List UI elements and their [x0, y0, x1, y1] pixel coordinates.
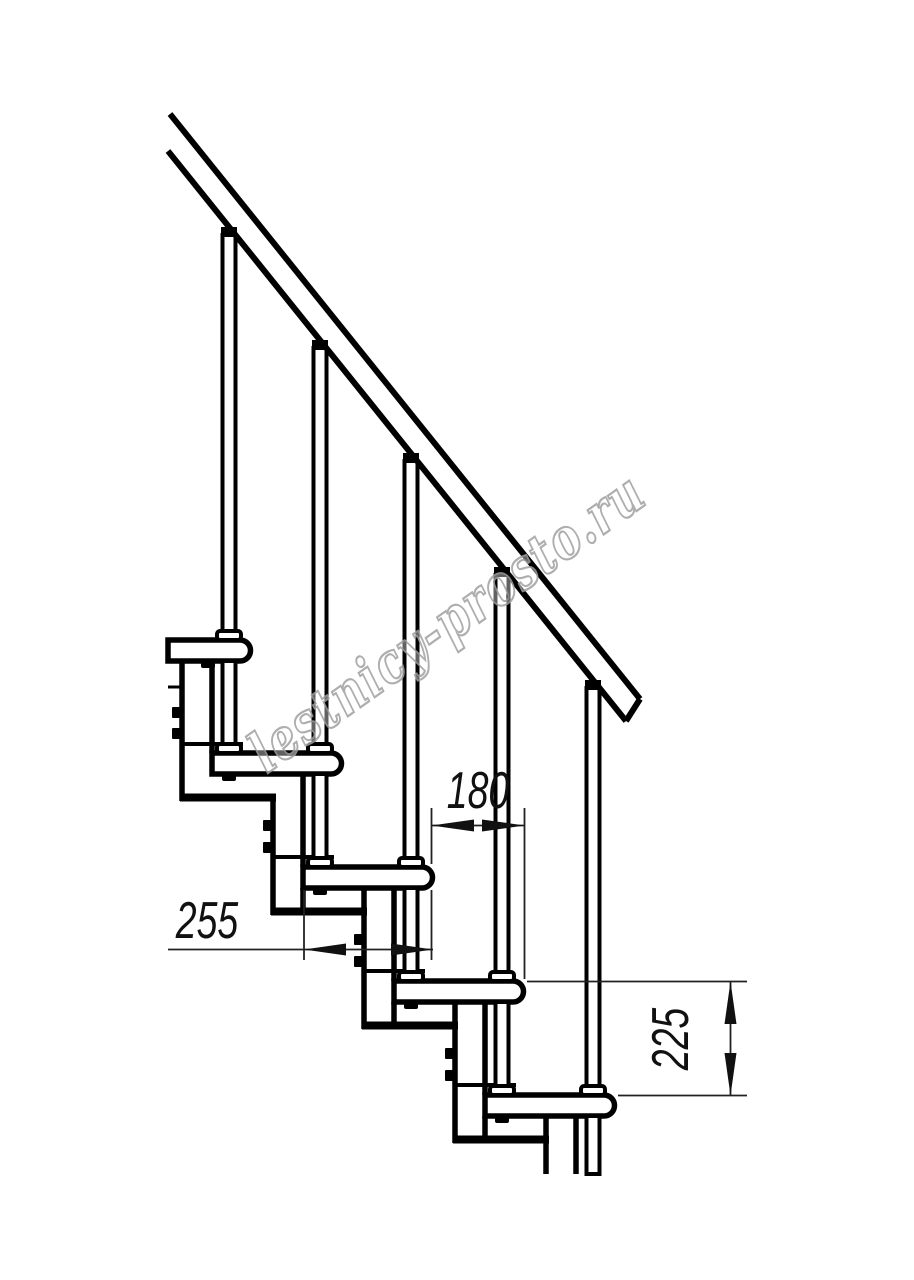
module-3-bolt-tab: [354, 934, 364, 945]
baluster-3: [399, 453, 423, 1009]
dimension-step-run: 180: [431, 761, 525, 979]
baluster-1-lower-collar: [217, 744, 241, 753]
support-module-5: [546, 1116, 576, 1174]
baluster-3-collar: [399, 858, 423, 867]
baluster-2-lower-rod: [314, 774, 327, 858]
baluster-4-collar: [490, 972, 514, 981]
baluster-3-lower-rod: [405, 888, 418, 972]
stair-drawing-svg: 180 255 225 lestnicy-prosto.ru: [0, 0, 914, 1280]
dim-255-arrow-left: [304, 944, 346, 956]
module-2-bolt-tab: [263, 842, 273, 853]
baluster-1-lower-rod: [223, 661, 236, 744]
baluster-3-lower-collar: [399, 972, 423, 981]
dim-225-label: 225: [641, 1007, 700, 1071]
dim-255-label: 255: [175, 891, 239, 950]
baluster-1-rod: [223, 235, 236, 631]
baluster-4: [490, 567, 514, 1123]
module-1-bolt-tab: [172, 707, 182, 718]
baluster-3-nut: [404, 1002, 418, 1009]
baluster-5-collar: [581, 1086, 605, 1095]
baluster-2-lower-collar: [308, 858, 332, 867]
dim-225-arrow-bottom: [725, 1053, 737, 1096]
baluster-2: [308, 340, 332, 895]
tread-1-bolt: [201, 661, 215, 668]
dimension-step-rise: 225: [527, 981, 747, 1096]
baluster-4-nut: [495, 1116, 509, 1123]
stair-technical-drawing: 180 255 225 lestnicy-prosto.ru: [0, 0, 914, 1280]
tread-3: [303, 867, 433, 888]
dim-180-arrow-left: [432, 820, 475, 832]
baluster-5-lower-rod: [587, 1116, 600, 1174]
baluster-1-collar: [217, 631, 241, 640]
baluster-1-nut: [222, 774, 236, 781]
tread-1: [168, 640, 251, 661]
tread-5: [485, 1095, 615, 1116]
baluster-1: [217, 227, 241, 781]
handrail-end-cap: [626, 699, 640, 721]
dim-180-label: 180: [447, 761, 509, 820]
module-1-bolt-tab: [172, 728, 182, 739]
baluster-2-nut: [313, 888, 327, 895]
module-2-bolt-tab: [263, 820, 273, 831]
baluster-4-lower-collar: [490, 1086, 514, 1095]
baluster-5-rod: [587, 688, 600, 1086]
module-4-bolt-tab: [445, 1048, 455, 1059]
tread-4: [394, 981, 524, 1002]
dim-225-arrow-top: [725, 982, 737, 1025]
baluster-4-lower-rod: [496, 1002, 509, 1086]
module-3-bolt-tab: [354, 956, 364, 967]
module-4-bolt-tab: [445, 1070, 455, 1081]
